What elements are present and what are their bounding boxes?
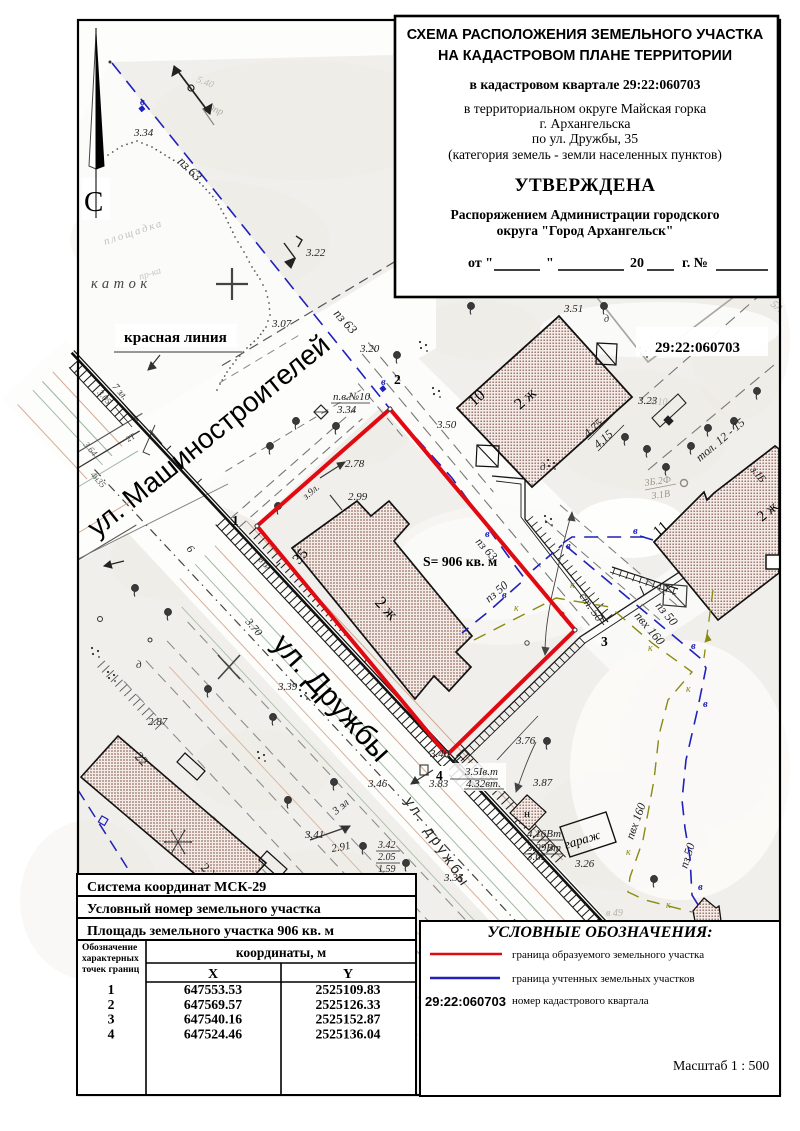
svg-text:округа "Город Архангельск": округа "Город Архангельск" (497, 223, 674, 238)
svg-text:н: н (524, 808, 530, 820)
svg-text:2.99: 2.99 (348, 491, 368, 503)
svg-text:2.78: 2.78 (345, 458, 365, 470)
svg-text:3.50: 3.50 (436, 419, 457, 431)
svg-text:в кадастровом квартале 29:22:0: в кадастровом квартале 29:22:060703 (470, 77, 701, 92)
svg-text:3.34: 3.34 (336, 404, 357, 416)
svg-text:к: к (626, 847, 631, 858)
svg-text:29:22:060703: 29:22:060703 (655, 340, 740, 356)
svg-text:УСЛОВНЫЕ ОБОЗНАЧЕНИЯ:: УСЛОВНЫЕ ОБОЗНАЧЕНИЯ: (487, 924, 712, 941)
svg-text:п.в.№10: п.в.№10 (333, 391, 371, 403)
svg-text:3: 3 (108, 1012, 115, 1027)
svg-text:3.34: 3.34 (133, 127, 154, 139)
svg-text:к: к (686, 684, 691, 695)
svg-text:3.51: 3.51 (563, 303, 583, 315)
svg-text:3.20: 3.20 (359, 343, 380, 355)
svg-text:3.39: 3.39 (277, 681, 298, 693)
svg-text:4.16Вт: 4.16Вт (527, 828, 561, 840)
svg-text:каток: каток (91, 276, 152, 292)
svg-text:647524.46: 647524.46 (184, 1026, 242, 1041)
svg-text:4: 4 (108, 1026, 115, 1041)
svg-text:в: в (698, 882, 703, 893)
svg-text:3.22: 3.22 (305, 247, 326, 259)
svg-text:д: д (136, 659, 142, 671)
svg-text:координаты, м: координаты, м (236, 945, 326, 960)
svg-text:3.07: 3.07 (271, 318, 292, 330)
svg-text:НА КАДАСТРОВОМ ПЛАНЕ ТЕРРИТОРИ: НА КАДАСТРОВОМ ПЛАНЕ ТЕРРИТОРИИ (438, 48, 732, 64)
svg-text:2525126.33: 2525126.33 (315, 997, 380, 1012)
svg-text:к: к (514, 603, 519, 614)
svg-text:С: С (84, 186, 103, 218)
svg-text:": " (546, 256, 554, 271)
svg-text:647540.16: 647540.16 (184, 1012, 242, 1027)
svg-text:2.87: 2.87 (148, 716, 168, 728)
svg-text:3.46: 3.46 (367, 778, 388, 790)
svg-text:в 49: в 49 (606, 908, 623, 919)
svg-text:граница учтенных земельных уча: граница учтенных земельных участков (512, 973, 695, 985)
svg-text:г. Архангельска: г. Архангельска (540, 116, 631, 131)
svg-text:в: в (703, 699, 708, 710)
svg-text:4.32вт.: 4.32вт. (466, 778, 501, 790)
svg-text:в: в (566, 541, 571, 552)
svg-text:к: к (648, 643, 653, 654)
svg-text:3.23: 3.23 (637, 395, 658, 407)
svg-text:Обозначение: Обозначение (82, 942, 137, 953)
svg-text:1: 1 (108, 982, 115, 997)
svg-text:3.76: 3.76 (515, 735, 536, 747)
svg-text:к: к (570, 580, 575, 591)
svg-text:2525136.04: 2525136.04 (315, 1026, 380, 1041)
svg-text:3: 3 (601, 634, 608, 649)
svg-text:номер кадастрового квартала: номер кадастрового квартала (512, 995, 649, 1007)
svg-text:3.41: 3.41 (304, 829, 324, 841)
svg-text:3.99Вт: 3.99Вт (526, 842, 561, 854)
svg-text:Система координат МСК-29: Система координат МСК-29 (87, 880, 266, 895)
svg-text:3.87: 3.87 (532, 777, 553, 789)
svg-text:красная линия: красная линия (124, 329, 227, 346)
svg-text:Распоряжением Администрации го: Распоряжением Администрации городского (450, 207, 719, 222)
svg-text:Площадь земельного участка 906: Площадь земельного участка 906 кв. м (87, 924, 334, 939)
svg-text:29:22:060703: 29:22:060703 (425, 994, 506, 1009)
svg-text:г. №: г. № (682, 256, 708, 271)
svg-text:1: 1 (232, 513, 239, 528)
svg-text:647569.57: 647569.57 (184, 997, 242, 1012)
svg-text:к: к (666, 900, 671, 911)
svg-text:Масштаб 1 : 500: Масштаб 1 : 500 (673, 1058, 769, 1073)
svg-text:д: д (604, 314, 609, 325)
svg-text:3.83: 3.83 (428, 778, 449, 790)
svg-text:X: X (208, 967, 218, 982)
svg-text:граница образуемого земельного: граница образуемого земельного участка (512, 949, 704, 961)
svg-text:3.40: 3.40 (429, 748, 450, 760)
svg-text:3.42: 3.42 (377, 840, 396, 851)
svg-text:в территориальном округе Майск: в территориальном округе Майская горка (464, 101, 706, 116)
svg-text:3.26: 3.26 (574, 858, 595, 870)
svg-text:точек границ: точек границ (82, 965, 140, 975)
svg-text:д: д (540, 461, 546, 473)
svg-text:3.5Iв.т: 3.5Iв.т (464, 766, 498, 778)
svg-text:20: 20 (630, 256, 644, 271)
svg-text:2: 2 (394, 372, 401, 387)
svg-text:Условный номер земельного учас: Условный номер земельного участка (87, 902, 321, 917)
svg-text:УТВЕРЖДЕНА: УТВЕРЖДЕНА (515, 175, 656, 196)
svg-text:2525152.87: 2525152.87 (315, 1012, 380, 1027)
svg-text:по ул. Дружбы, 35: по ул. Дружбы, 35 (532, 131, 638, 146)
svg-text:2525109.83: 2525109.83 (315, 982, 380, 997)
svg-text:2.05: 2.05 (378, 852, 396, 863)
svg-text:в: в (633, 526, 638, 537)
svg-text:в: в (691, 641, 696, 652)
svg-text:(категория земель - земли насе: (категория земель - земли населенных пун… (448, 147, 722, 162)
svg-text:647553.53: 647553.53 (184, 982, 242, 997)
svg-text:Y: Y (343, 967, 353, 982)
svg-text:2: 2 (108, 997, 115, 1012)
svg-text:от ": от " (468, 256, 493, 271)
svg-text:3.35: 3.35 (443, 872, 464, 884)
svg-text:характерных: характерных (82, 954, 139, 964)
svg-text:СХЕМА РАСПОЛОЖЕНИЯ ЗЕМЕЛЬНОГО: СХЕМА РАСПОЛОЖЕНИЯ ЗЕМЕЛЬНОГО УЧАСТКА (407, 27, 764, 43)
